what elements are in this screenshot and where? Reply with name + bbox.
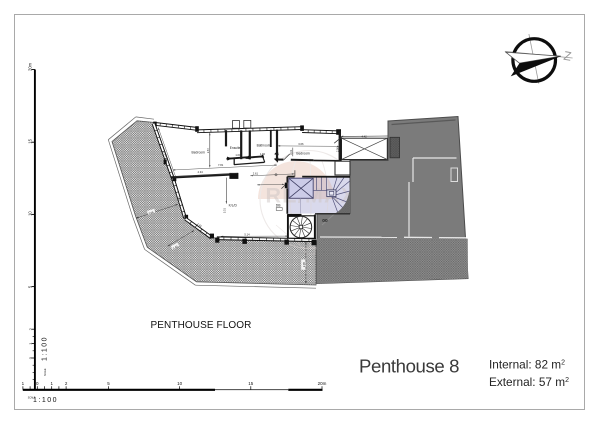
svg-text:1.60: 1.60 <box>235 153 241 157</box>
svg-text:K/L/D: K/L/D <box>229 203 238 207</box>
svg-text:Ensuite: Ensuite <box>230 146 241 150</box>
svg-text:15: 15 <box>28 138 33 143</box>
svg-text:SCALE: SCALE <box>44 368 47 376</box>
svg-text:10: 10 <box>28 211 33 216</box>
svg-text:4.34: 4.34 <box>198 170 204 174</box>
svg-text:1:100: 1:100 <box>42 336 49 361</box>
svg-text:PENTHOUSE FLOOR: PENTHOUSE FLOOR <box>151 320 252 331</box>
svg-text:1:100: 1:100 <box>33 397 58 404</box>
svg-text:3.66: 3.66 <box>298 142 304 146</box>
svg-text:Bathroom: Bathroom <box>257 143 271 147</box>
svg-text:10: 10 <box>177 381 183 386</box>
svg-text:7.81: 7.81 <box>218 163 224 167</box>
svg-text:DB: DB <box>276 204 281 208</box>
svg-text:2.56: 2.56 <box>336 147 339 152</box>
svg-text:2.01: 2.01 <box>290 149 293 154</box>
svg-text:2.95: 2.95 <box>302 262 306 268</box>
svg-text:Internal: 82 m2: Internal: 82 m2 <box>489 357 565 371</box>
svg-text:00: 00 <box>322 218 328 224</box>
svg-text:20m: 20m <box>318 381 327 386</box>
svg-text:External: 57 m2: External: 57 m2 <box>489 375 569 389</box>
svg-text:5.14: 5.14 <box>244 232 250 236</box>
svg-text:Penthouse 8: Penthouse 8 <box>359 356 459 377</box>
svg-text:20m: 20m <box>28 62 33 71</box>
svg-text:Bedroom: Bedroom <box>296 152 310 156</box>
svg-text:1.60: 1.60 <box>260 152 266 156</box>
svg-text:4.42: 4.42 <box>362 134 368 138</box>
svg-text:2.67: 2.67 <box>206 148 210 154</box>
svg-text:15: 15 <box>248 381 254 386</box>
svg-text:Bedroom: Bedroom <box>192 150 206 154</box>
svg-text:5.31: 5.31 <box>223 208 227 214</box>
svg-text:2.61: 2.61 <box>253 172 259 176</box>
